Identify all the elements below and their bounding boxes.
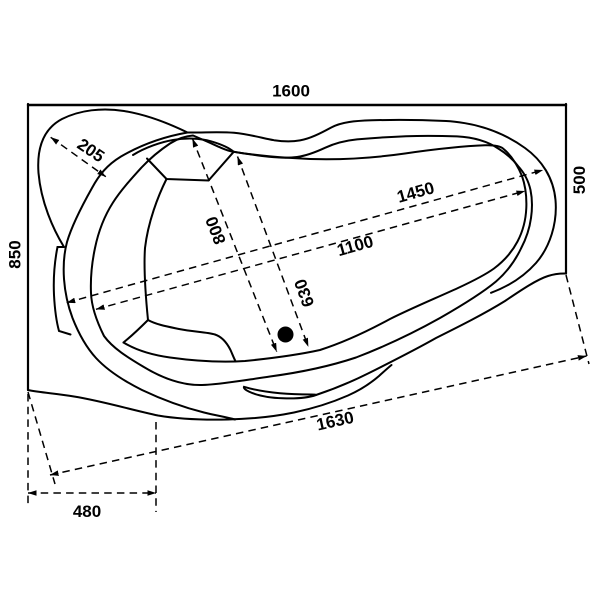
svg-text:850: 850 bbox=[6, 240, 25, 268]
svg-text:205: 205 bbox=[74, 135, 108, 167]
svg-text:1600: 1600 bbox=[272, 82, 310, 101]
svg-text:1100: 1100 bbox=[335, 232, 376, 260]
svg-text:480: 480 bbox=[73, 502, 101, 521]
svg-text:500: 500 bbox=[570, 166, 589, 194]
svg-text:1630: 1630 bbox=[315, 408, 356, 435]
svg-text:800: 800 bbox=[202, 214, 230, 247]
svg-text:630: 630 bbox=[291, 276, 319, 309]
svg-text:1450: 1450 bbox=[395, 178, 437, 206]
